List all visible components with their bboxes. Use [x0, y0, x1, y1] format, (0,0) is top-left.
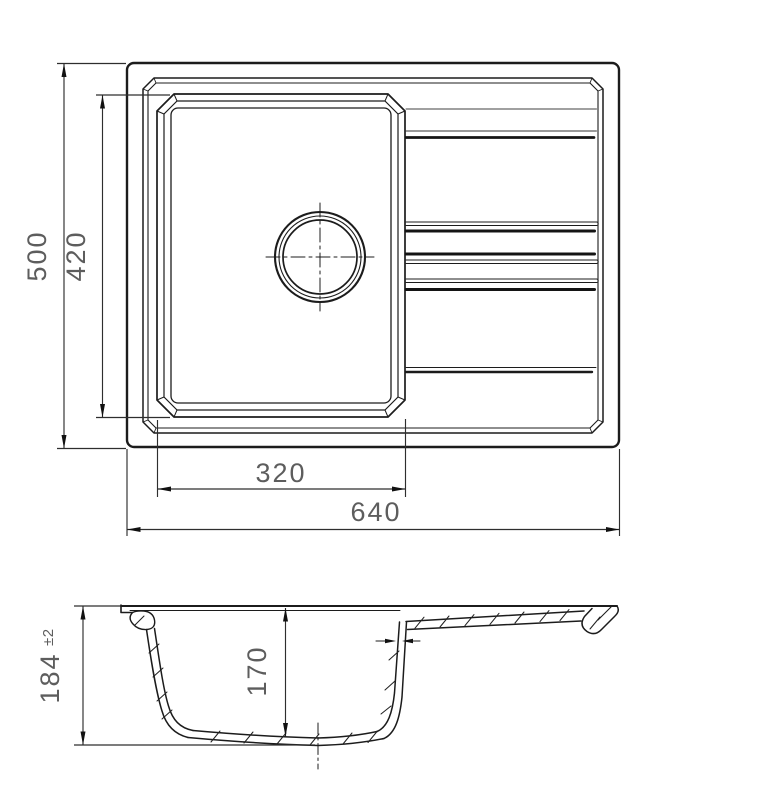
bowl-bottom-outer: [188, 738, 384, 746]
section-right-lip: [582, 606, 618, 634]
section-left-bead: [130, 611, 155, 630]
drain: [266, 203, 374, 311]
sink-technical-drawing: 500 420 320 640: [0, 0, 764, 800]
section-right-lip-inner: [598, 607, 611, 620]
bowl-rim-outer: [157, 94, 405, 417]
dim-184: [74, 606, 315, 745]
bowl-rim-middle: [164, 101, 398, 410]
bowl-wall-left-outer: [147, 630, 189, 738]
dim-label-bowl-width: 320: [255, 458, 306, 488]
drainboard-slab-top: [406, 611, 584, 622]
dim-label-bowl-depth: 420: [61, 230, 91, 281]
dim-label-overall-width: 640: [350, 497, 401, 527]
dim-label-overall-depth: 500: [22, 230, 52, 281]
plan-dimensions: [57, 64, 620, 537]
dim-170: [283, 608, 288, 737]
drainboard-slab-bottom: [408, 621, 582, 630]
section-hatching: [135, 610, 600, 745]
bowl-wall-right-inner: [377, 622, 400, 732]
dim-label-overall-height: 184: [35, 652, 65, 703]
section-dimensions: [74, 606, 315, 745]
plan-view: [127, 63, 619, 447]
dim-label-bowl-inner-depth: 170: [242, 645, 272, 696]
dim-label-height-tolerance: ±2: [40, 628, 57, 646]
bowl-corner-facets: [157, 94, 405, 417]
bowl-wall-left-inner: [155, 629, 194, 731]
drawing-sheet: 500 420 320 640: [0, 0, 764, 800]
dim-420: [96, 95, 170, 418]
bowl-opening: [171, 108, 391, 403]
section-view: [121, 605, 618, 769]
drainboard-grooves: [406, 109, 598, 372]
